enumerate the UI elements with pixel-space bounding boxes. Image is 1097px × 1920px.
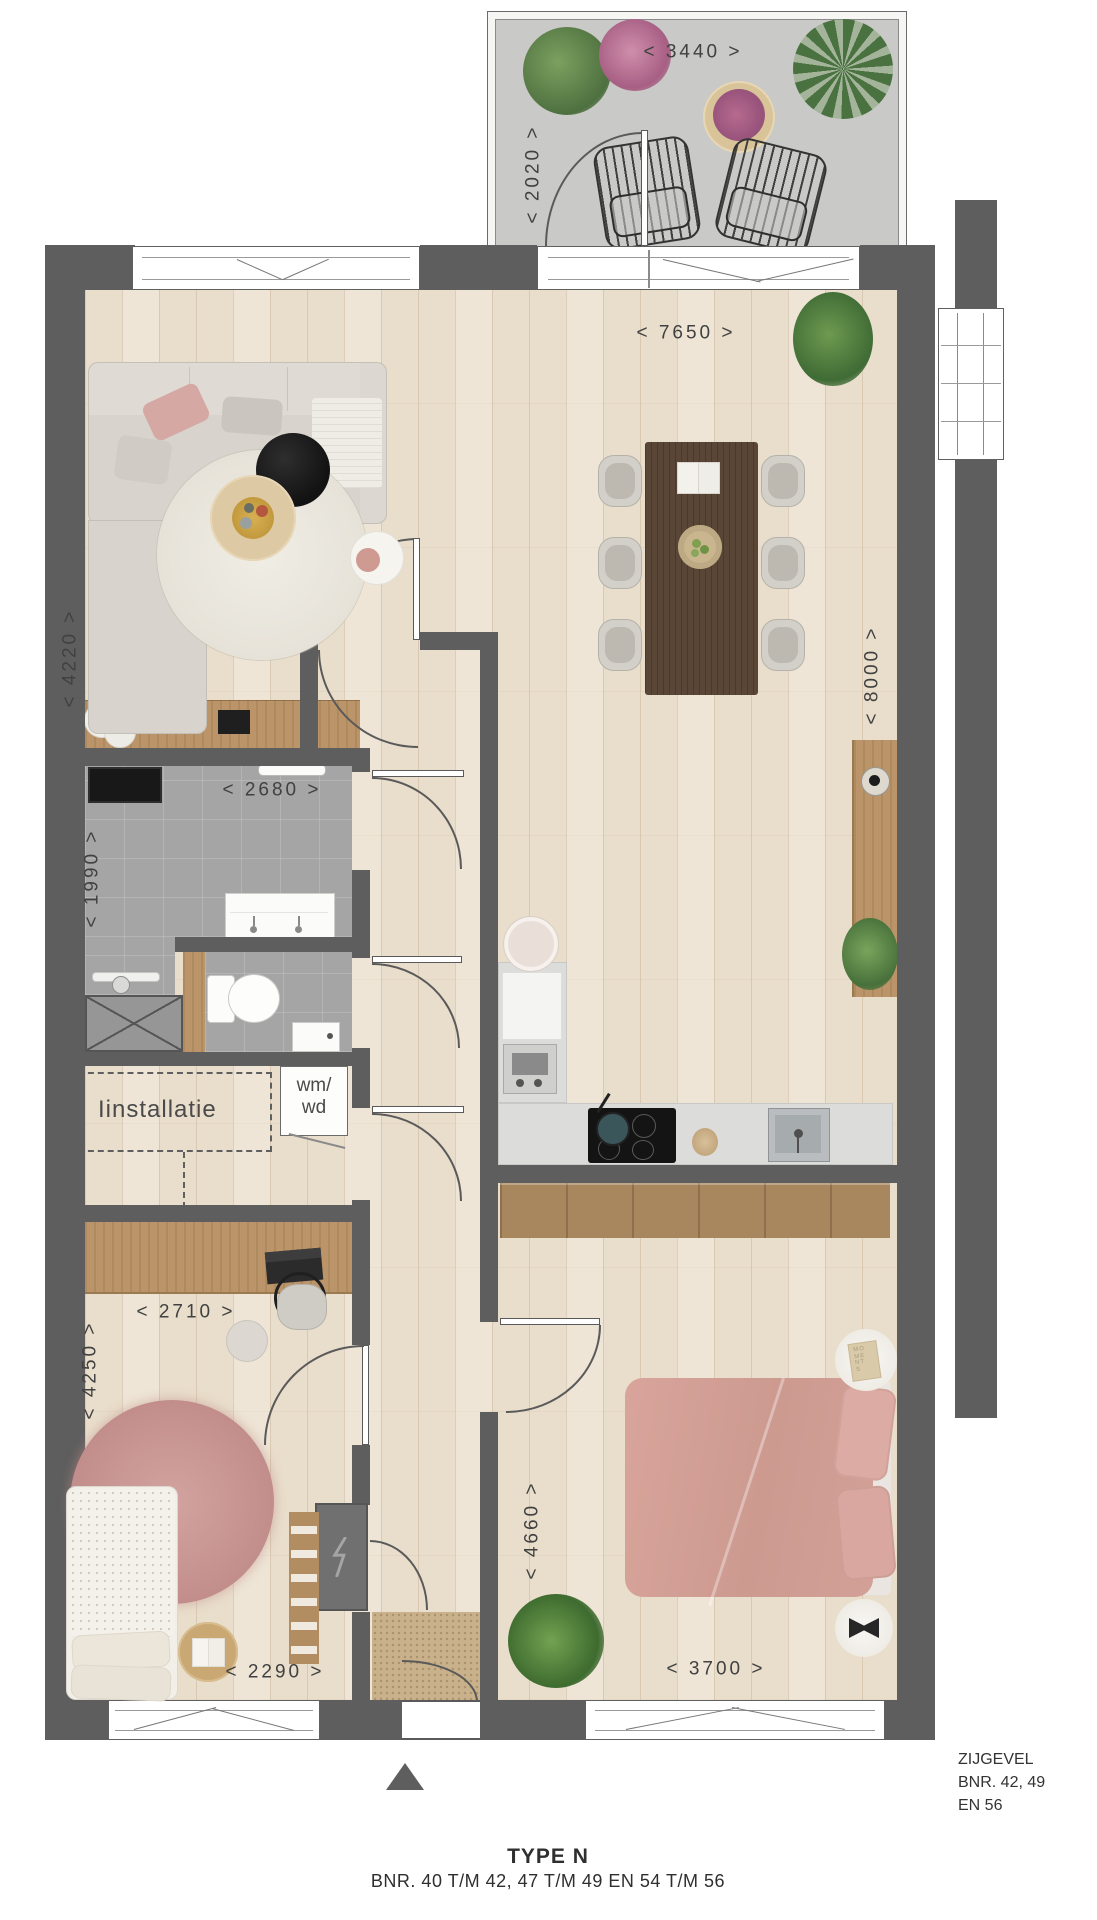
kitchen-side-table (504, 917, 558, 971)
entrance-opening (402, 1700, 480, 1740)
balcony-sliding-door (537, 246, 860, 290)
cooktop (588, 1108, 676, 1163)
stool (226, 1320, 268, 1362)
wall (352, 748, 370, 772)
pillow (835, 1485, 897, 1581)
exterior-wall-top (420, 245, 537, 290)
frying-pan (596, 1112, 630, 1146)
side-table-bowl (356, 548, 380, 572)
dim-balcony-depth: < 2020 > (524, 124, 543, 223)
cutting-board (502, 972, 562, 1040)
sideboard-plant (842, 918, 898, 990)
dim-bedroom1-width: < 3700 > (666, 1660, 765, 1679)
balcony-bush-plant (523, 27, 611, 115)
toilet-side-panel (183, 952, 205, 1052)
balcony-chair (712, 135, 830, 257)
wall (352, 1445, 370, 1505)
desk-chair-seat (277, 1284, 327, 1330)
dim-bedroom2-lower-width: < 2290 > (225, 1663, 324, 1682)
door-leaf (372, 1106, 464, 1113)
wardrobe (500, 1183, 890, 1238)
dim-living-depth: < 4220 > (61, 608, 80, 707)
fruit-bowl (678, 525, 722, 569)
door-leaf (413, 538, 420, 640)
wall (175, 937, 370, 952)
plan-subtitle: BNR. 40 T/M 42, 47 T/M 49 EN 54 T/M 56 (371, 1871, 725, 1892)
open-book (677, 462, 699, 494)
floor-plan: < 3440 > < 2020 > Iinstal (0, 0, 1097, 1920)
shower-head (112, 976, 130, 994)
door-leaf (372, 956, 462, 963)
duvet-pink (625, 1378, 873, 1597)
dining-chair (598, 619, 642, 671)
sideboard-tray (218, 710, 250, 734)
side-gable-window (938, 308, 1004, 460)
exterior-wall-bottom (480, 1700, 585, 1740)
open-book (698, 462, 720, 494)
pillow (70, 1664, 171, 1701)
wall (480, 1412, 498, 1700)
bedroom2-bed (66, 1486, 178, 1700)
exterior-wall-right (897, 245, 935, 1740)
exterior-wall-bottom (320, 1700, 402, 1740)
bedroom1-bed (625, 1375, 893, 1600)
faucet (250, 926, 257, 933)
lightning-icon (331, 1537, 353, 1577)
bathroom-radiator (88, 767, 162, 803)
shower-floor (85, 937, 175, 995)
dining-chair (761, 619, 805, 671)
washer-dryer-box: wm/ wd (280, 1066, 348, 1136)
wall (480, 1165, 897, 1183)
wall (352, 1612, 370, 1700)
dim-bedroom2-width: < 2710 > (136, 1303, 235, 1322)
speaker (861, 767, 890, 796)
dining-chair (598, 455, 642, 507)
door-leaf (372, 770, 464, 777)
wall (85, 1205, 370, 1222)
dim-living-dining-width: < 7650 > (636, 324, 735, 343)
garlic-decor (692, 1128, 718, 1156)
sofa-pillow (221, 396, 283, 436)
dim-bedroom1-depth: < 4660 > (523, 1480, 542, 1579)
exterior-wall-bottom (45, 1700, 108, 1740)
wall (85, 1052, 370, 1066)
shaft (85, 995, 183, 1052)
dining-plant (793, 292, 873, 386)
book-moments: MOMENTS (847, 1340, 881, 1382)
dining-chair (761, 537, 805, 589)
side-gable-label: ZIJGEVEL BNR. 42, 49 EN 56 (958, 1748, 1045, 1818)
sofa-pillow (113, 434, 173, 485)
duvet-dotted (69, 1489, 175, 1637)
exterior-wall-top (860, 245, 935, 290)
dim-bathroom-width: < 2680 > (222, 781, 321, 800)
dining-chair (761, 455, 805, 507)
living-room-window (132, 246, 420, 290)
bedroom2-window (108, 1700, 320, 1740)
dim-balcony-width: < 3440 > (643, 43, 742, 62)
gold-tray (232, 497, 274, 539)
exterior-wall-bottom (885, 1700, 935, 1740)
dining-chair (598, 537, 642, 589)
open-book (192, 1638, 209, 1667)
north-arrow (386, 1763, 424, 1790)
washer-label: wm/ (281, 1075, 347, 1097)
faucet (295, 926, 302, 933)
plan-title: TYPE N (507, 1845, 589, 1869)
toilet-bowl (228, 974, 280, 1023)
dim-bedroom2-depth: < 4250 > (81, 1320, 100, 1419)
washer-label: wd (281, 1097, 347, 1119)
balcony-palm-plant (793, 19, 893, 119)
dim-bathroom-depth: < 1990 > (83, 828, 102, 927)
ladder-shelf (289, 1512, 319, 1664)
balcony-table-flowers (713, 89, 765, 141)
wall (420, 632, 498, 650)
wall (480, 1183, 498, 1322)
kitchen-sink (768, 1108, 830, 1162)
open-book (208, 1638, 225, 1667)
book-title: MOMENTS (849, 1343, 871, 1375)
exterior-wall-top (45, 245, 135, 290)
balcony-door-leaf (641, 130, 648, 246)
pillow (833, 1384, 898, 1482)
bedroom1-plant (508, 1594, 604, 1688)
wall (480, 650, 498, 1165)
installation-label: Iinstallatie (98, 1096, 217, 1124)
wall (300, 632, 318, 766)
dim-main-area-depth: < 8000 > (863, 625, 882, 724)
coffee-machine (503, 1044, 557, 1094)
door-leaf (500, 1318, 600, 1325)
dining-table (645, 442, 758, 695)
bedroom1-window (585, 1700, 885, 1740)
meter-cupboard (315, 1503, 368, 1611)
toilet-sink (292, 1022, 340, 1052)
wall (85, 748, 370, 766)
